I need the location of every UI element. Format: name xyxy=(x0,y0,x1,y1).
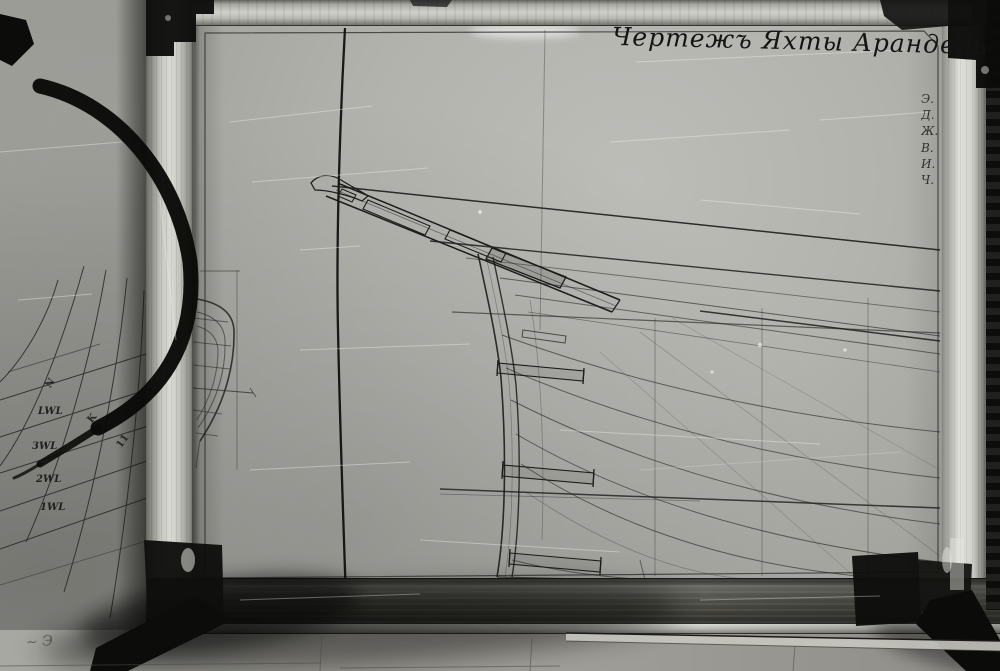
dark-background-right xyxy=(986,0,1000,610)
frame-shadow xyxy=(116,0,148,642)
frame-rail-top xyxy=(148,0,972,26)
paper-edge-shadow xyxy=(192,24,200,580)
paper-shading xyxy=(194,24,942,580)
frame-rail-right xyxy=(942,26,988,606)
photo-of-yacht-drawing-board: Чертежъ Яхты Арандель Э. Д. Ж. В. И. Ч. … xyxy=(0,0,1000,671)
paper-smudge xyxy=(470,24,580,38)
frame-rail-left xyxy=(146,0,192,640)
